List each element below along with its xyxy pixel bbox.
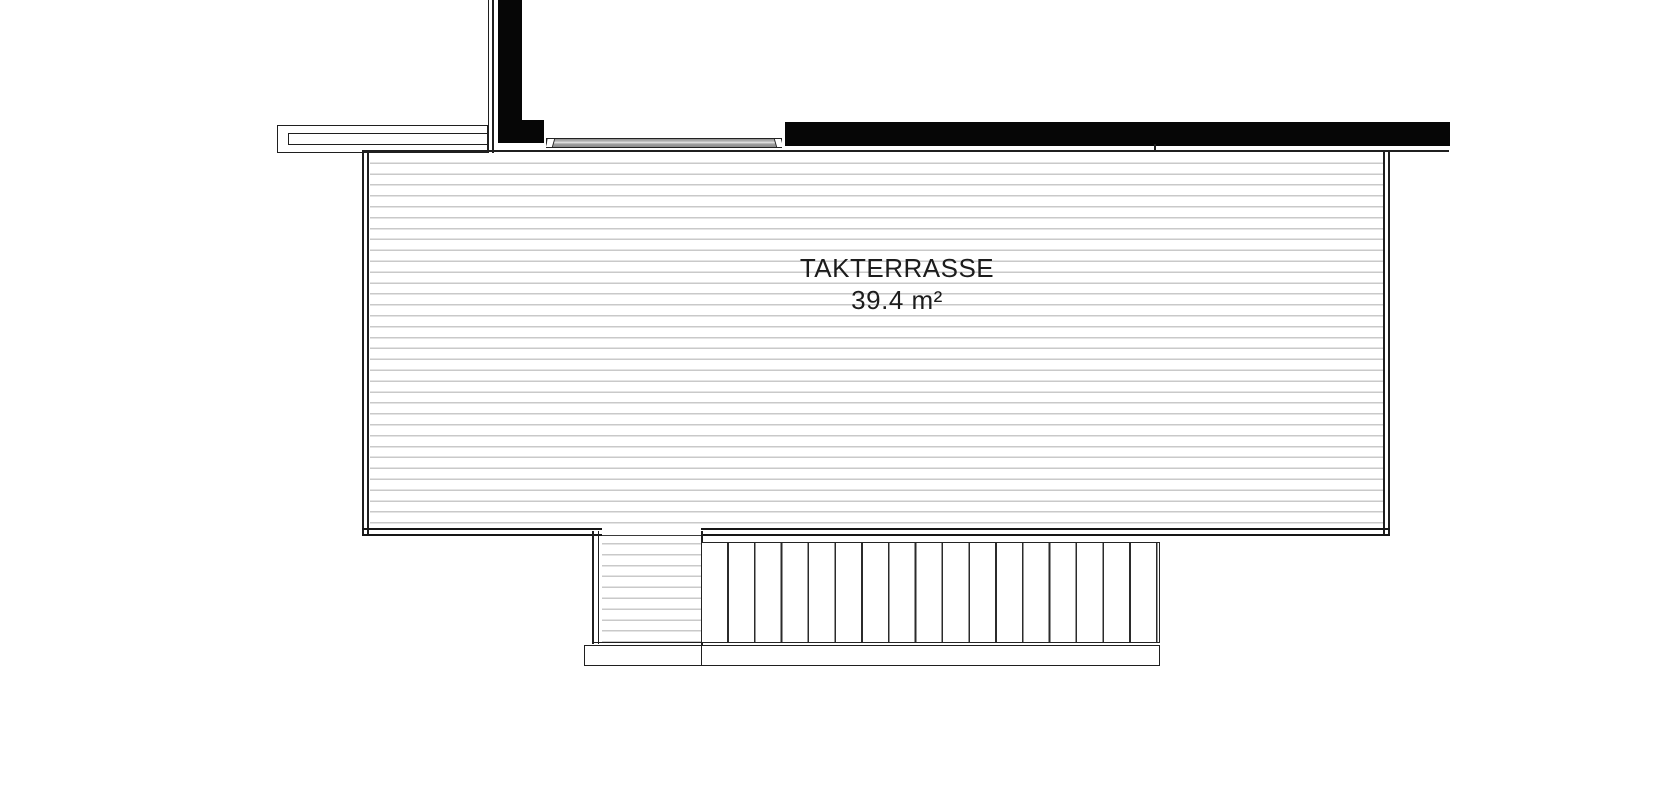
terrace-edge-right-outer bbox=[1388, 150, 1390, 536]
terrace-edge-bottom-right-a bbox=[701, 528, 1390, 530]
walkway-bottom-line bbox=[592, 642, 701, 644]
exterior-wall-left-foot bbox=[498, 120, 545, 143]
wall-underline-extension bbox=[1390, 150, 1449, 152]
terrace-opening-threshold-line bbox=[602, 535, 701, 536]
exterior-wall-black-left bbox=[498, 0, 523, 122]
terrace-edge-bottom-left-a bbox=[362, 528, 602, 530]
walkway-edge-left-inner bbox=[598, 531, 600, 644]
exterior-wall-black-top bbox=[785, 122, 1450, 146]
door-jamb-left-icon bbox=[545, 139, 554, 147]
room-label: TAKTERRASSE 39.4 m² bbox=[647, 252, 1147, 316]
landing-step-bar bbox=[584, 645, 1160, 667]
walkway-decking-hatch bbox=[602, 536, 701, 643]
room-area: 39.4 m² bbox=[647, 284, 1147, 316]
terrace-edge-left-inner bbox=[367, 150, 369, 536]
terrace-edge-left-outer bbox=[362, 150, 364, 536]
floor-plan-canvas: TAKTERRASSE 39.4 m² bbox=[0, 0, 1670, 800]
stair-treads bbox=[701, 542, 1160, 644]
terrace-edge-bottom-right-b bbox=[701, 534, 1390, 536]
terrace-decking-hatch bbox=[370, 153, 1383, 528]
terrace-edge-right-inner bbox=[1383, 150, 1385, 536]
landing-step-divider bbox=[701, 645, 703, 667]
terrace-edge-top bbox=[362, 150, 1390, 152]
wall-line-inner bbox=[492, 0, 494, 153]
walkway-edge-left-outer bbox=[592, 531, 594, 644]
terrace-edge-bottom-left-b bbox=[362, 534, 602, 536]
door-jamb-right-icon bbox=[773, 139, 782, 147]
parapet-ledge-inner bbox=[288, 133, 489, 145]
sliding-door-sill bbox=[546, 138, 782, 148]
room-name: TAKTERRASSE bbox=[647, 252, 1147, 284]
